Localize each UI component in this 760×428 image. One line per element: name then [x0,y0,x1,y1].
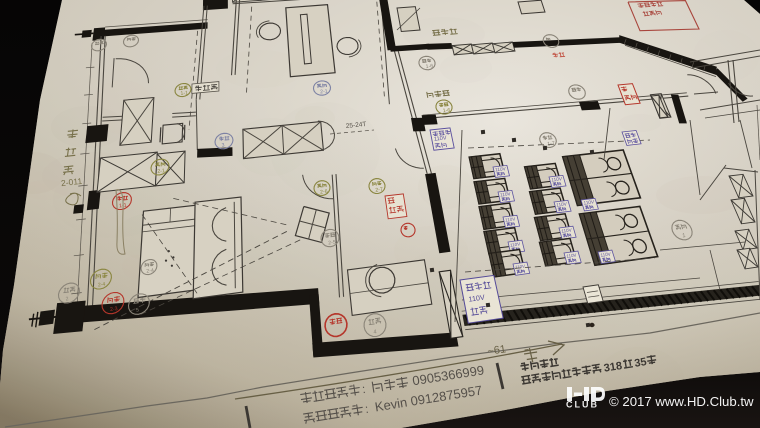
svg-text:2-6: 2-6 [320,189,328,196]
svg-text:1-6: 1-6 [425,63,433,70]
svg-text:2-7: 2-7 [375,187,383,194]
svg-text:1-6: 1-6 [443,108,451,115]
svg-text:2-4: 2-4 [98,282,106,289]
svg-text:35: 35 [634,356,648,370]
svg-text:2-5: 2-5 [328,240,336,247]
svg-text:2-1: 2-1 [157,168,165,175]
svg-text:2-1: 2-1 [320,89,328,96]
svg-text:1-7: 1-7 [547,141,555,148]
svg-text:CLUB: CLUB [566,400,599,410]
svg-text:1-1: 1-1 [180,90,188,97]
svg-text:2-4: 2-4 [146,268,154,275]
svg-text:© 2017 www.HD.Club.tw: © 2017 www.HD.Club.tw [609,394,754,409]
svg-text:2-3: 2-3 [110,306,118,313]
